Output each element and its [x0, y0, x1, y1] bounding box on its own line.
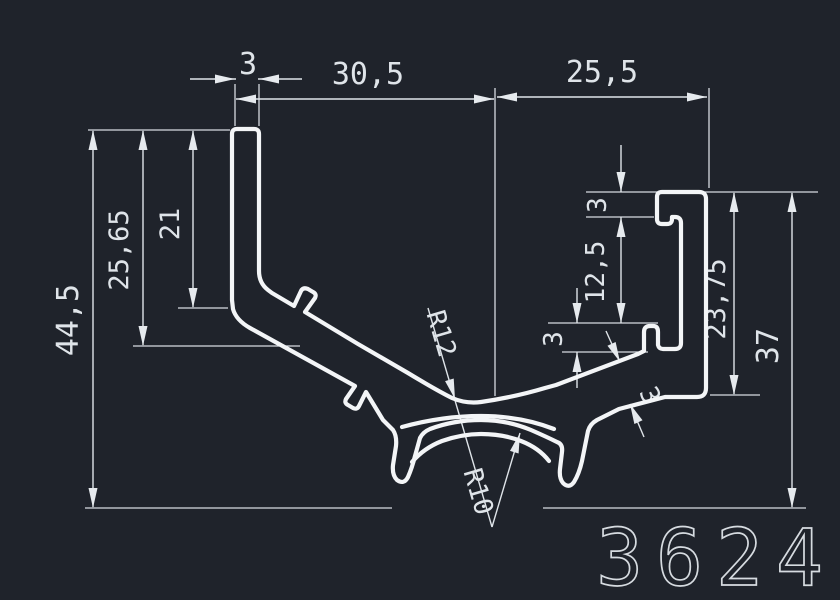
- profile-strip-underside: [402, 416, 554, 429]
- dim-label-overall-height: 44,5: [51, 284, 86, 356]
- profile-outline: [232, 129, 706, 486]
- dim-label-inner-drop: 21: [155, 208, 186, 241]
- dim-label-span-left: 30,5: [332, 57, 404, 92]
- dim-label-radius-large: R12: [420, 307, 462, 361]
- dim-label-radius-small: R10: [457, 465, 499, 519]
- dim-label-slot-opening: 12,5: [581, 241, 611, 304]
- dim-label-span-right: 25,5: [566, 55, 638, 90]
- profile-geometry: [232, 129, 706, 486]
- dim-label-bend-depth: 25,65: [104, 209, 135, 290]
- dim-label-right-height: 37: [751, 328, 786, 364]
- dim-label-bar-width: 3: [239, 47, 257, 82]
- profile-arch-inner: [412, 434, 549, 462]
- dim-label-bottom-hook: 3: [539, 331, 569, 347]
- dim-label-lip-hook: 3: [583, 197, 613, 213]
- extrusion-profile-drawing: 3 30,5 25,5 44,5 25,65 21 3 12,5 3 3 23,…: [0, 0, 840, 600]
- dimension-lines: [89, 75, 797, 528]
- cad-drawing-canvas: 3 30,5 25,5 44,5 25,65 21 3 12,5 3 3 23,…: [0, 0, 840, 600]
- part-number-text: 3624: [596, 514, 836, 600]
